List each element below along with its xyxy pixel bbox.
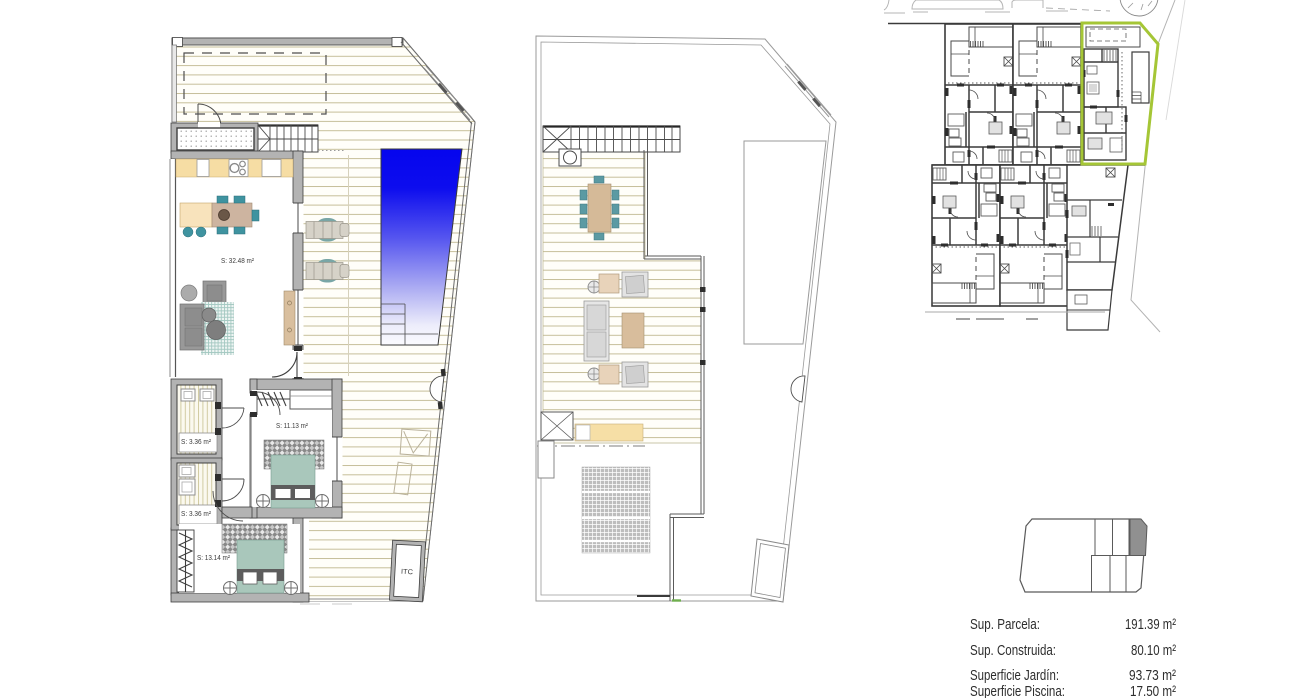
svg-text:S: 3.36 m²: S: 3.36 m² <box>181 439 212 446</box>
svg-text:S: 32.48 m²: S: 32.48 m² <box>221 256 254 265</box>
svg-text:ITC: ITC <box>401 569 413 577</box>
svg-text:Sup. Parcela:: Sup. Parcela: <box>970 616 1040 633</box>
svg-text:S: 3.36 m²: S: 3.36 m² <box>181 511 212 518</box>
svg-text:17.50 m²: 17.50 m² <box>1130 683 1176 698</box>
svg-text:Superficie Jardín:: Superficie Jardín: <box>970 667 1059 684</box>
svg-text:93.73 m²: 93.73 m² <box>1129 667 1176 684</box>
svg-text:191.39 m²: 191.39 m² <box>1125 616 1176 633</box>
svg-text:S: 11.13 m²: S: 11.13 m² <box>276 421 308 430</box>
svg-text:80.10 m²: 80.10 m² <box>1131 642 1176 659</box>
svg-text:Superficie Piscina:: Superficie Piscina: <box>970 683 1065 698</box>
svg-text:S: 13.14 m²: S: 13.14 m² <box>197 553 230 562</box>
svg-text:Sup. Construida:: Sup. Construida: <box>970 642 1056 659</box>
